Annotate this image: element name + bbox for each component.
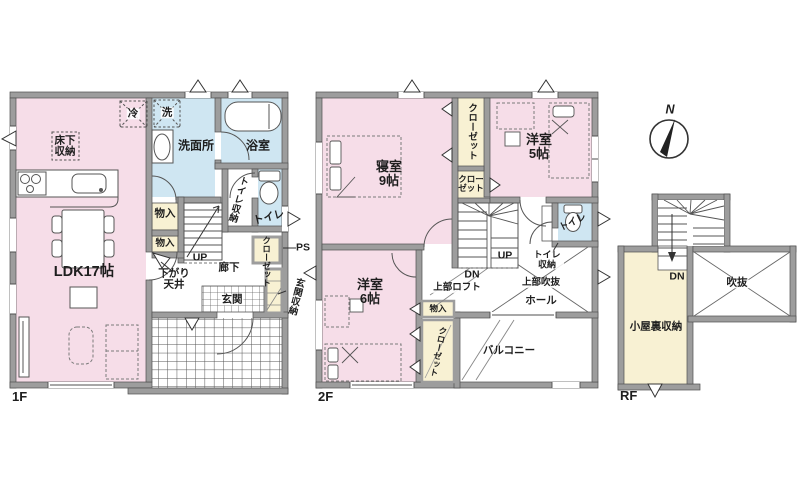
label-1f-stairs-up: UP xyxy=(193,252,208,263)
floor-rf-geometry xyxy=(618,194,796,397)
label-2f-void-above: 上部吹抜 xyxy=(521,278,561,288)
label-1f-washroom: 洗面所 xyxy=(178,140,214,153)
label-1f-storage-b: 物入 xyxy=(155,239,174,249)
label-2f-closet-small: クローゼット xyxy=(457,175,485,193)
label-1f-pipe-space: PS xyxy=(296,242,310,253)
label-rf-void: 吹抜 xyxy=(726,277,749,288)
floor-label-1f: 1F xyxy=(12,390,27,404)
label-2f-closet-tall: クローゼット xyxy=(466,98,476,164)
floor-label-2f: 2F xyxy=(318,390,333,404)
label-1f-entrance: 玄関 xyxy=(221,294,244,305)
floor-plan-canvas: LDK17帖 床下収納 冷 洗 洗面所 浴室 トイレ トイレ収納 クローゼット … xyxy=(0,0,800,480)
label-1f-fridge: 冷 xyxy=(127,108,140,119)
label-1f-hallway: 廊下 xyxy=(219,262,240,273)
floor-1f-geometry xyxy=(2,80,300,394)
label-2f-storage: 物入 xyxy=(429,304,446,313)
label-compass-north: N xyxy=(665,103,674,117)
compass-icon xyxy=(650,119,688,158)
label-2f-stairs-up: UP xyxy=(498,250,513,261)
floor-label-rf: RF xyxy=(620,389,637,403)
floor-plan-drawing xyxy=(0,0,800,480)
label-1f-storage-a: 物入 xyxy=(155,208,176,219)
label-2f-hall: ホール xyxy=(524,295,558,306)
label-rf-attic-storage: 小屋裏収納 xyxy=(630,321,683,332)
label-2f-stairs-down: DN xyxy=(464,269,479,280)
label-1f-underfloor-storage: 床下収納 xyxy=(54,136,77,159)
label-2f-balcony: バルコニー xyxy=(483,345,535,356)
label-2f-bedroom: 寝室9帖 xyxy=(374,160,404,188)
label-rf-stairs-down: DN xyxy=(669,271,684,282)
label-2f-loft-above: 上部ロフト xyxy=(432,283,482,293)
label-1f-closet: クローゼット xyxy=(261,236,270,266)
label-1f-washer: 洗 xyxy=(161,107,174,118)
label-2f-western5: 洋室5帖 xyxy=(525,133,553,161)
label-1f-lowered-ceiling: 下がり天井 xyxy=(157,269,191,292)
label-1f-bath: 浴室 xyxy=(246,140,270,153)
floor-2f-geometry xyxy=(304,80,610,388)
label-2f-toilet-storage: トイレ収納 xyxy=(530,250,564,269)
label-2f-western6: 洋室6帖 xyxy=(356,278,384,306)
label-1f-ldk: LDK17帖 xyxy=(54,265,114,281)
